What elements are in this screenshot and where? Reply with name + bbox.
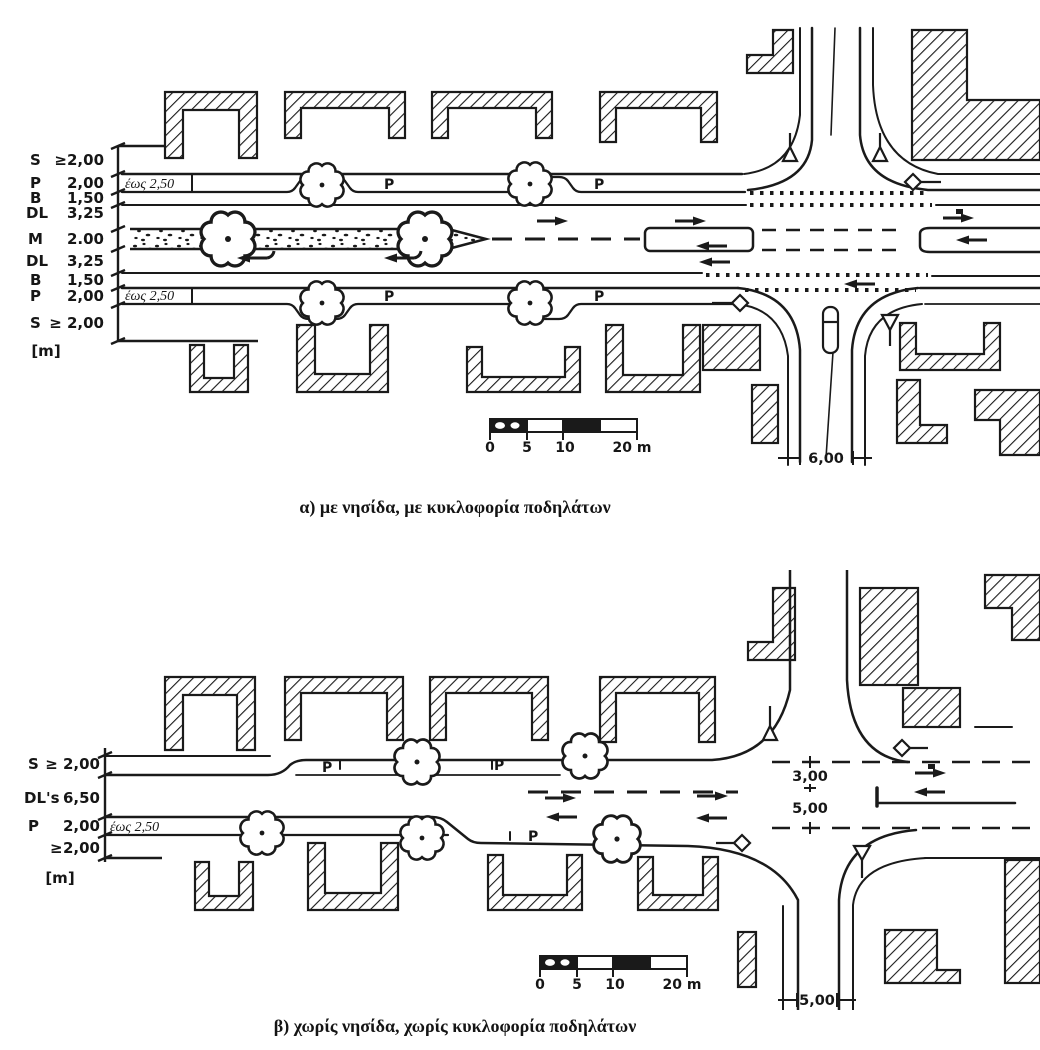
- parking-p-label: P: [384, 177, 394, 193]
- east-dim-bottom-label: 5,00: [792, 801, 828, 817]
- figure-b-plan: S ≥ 2,00 DL's 6,50 P 2,00 ≥ 2,00 [m]: [0, 570, 1040, 1010]
- left-dimension-scale: [98, 748, 162, 862]
- left-dimension-labels: S ≥2,00 P 2,00 B 1,50 DL 3,25 M 2.00 DL …: [26, 151, 104, 360]
- trees: [240, 734, 640, 863]
- dim-value-label: ≥ 2,00: [49, 314, 104, 332]
- median-island: [130, 228, 1040, 252]
- dim-value-label: 3,25: [67, 204, 104, 222]
- dim-value-label: 2,00: [63, 817, 100, 835]
- scale-tick-label: 5: [572, 977, 582, 993]
- parking-p-label: P: [494, 758, 504, 774]
- dim-value-label: 2,00: [67, 287, 104, 305]
- vehicle-icon: [823, 307, 838, 353]
- dim-code-label: M: [28, 230, 43, 248]
- traffic-signs: [716, 706, 928, 878]
- scale-bar: 0 5 10 20 m: [485, 419, 651, 456]
- unit-label: [m]: [45, 869, 74, 887]
- dim-code-label: P: [28, 817, 39, 835]
- parking-max-label: έως 2,50: [125, 177, 174, 192]
- dim-value-label: ≥2,00: [54, 151, 104, 169]
- dim-code-label: S: [30, 314, 41, 332]
- dim-code-label: ≥: [50, 839, 63, 857]
- scale-tick-label: 0: [485, 440, 495, 456]
- parking-p-label: P: [322, 760, 332, 776]
- scale-bar: 0 5 10 20 m: [535, 956, 701, 993]
- cross-width-label: 5,00: [799, 993, 835, 1009]
- scale-tick-label: 20 m: [613, 440, 652, 456]
- east-dimension-chain: [804, 756, 816, 834]
- tree-icon: [395, 740, 440, 785]
- cross-width-label: 6,00: [808, 451, 844, 467]
- dim-value-label: 3,25: [67, 252, 104, 270]
- scale-tick-label: 5: [522, 440, 532, 456]
- dim-value-label: 6,50: [63, 789, 100, 807]
- parking-max-label: έως 2,50: [125, 289, 174, 304]
- parking-p-label: P: [528, 829, 538, 845]
- dim-code-label: DL's: [24, 789, 60, 807]
- scale-tick-label: 0: [535, 977, 545, 993]
- dim-code-label: DL: [26, 252, 48, 270]
- tree-icon: [400, 816, 443, 859]
- east-dim-top-label: 3,00: [792, 769, 828, 785]
- scale-tick-label: 10: [605, 977, 625, 993]
- buildings-north: [165, 30, 1040, 160]
- scale-tick-label: 10: [555, 440, 575, 456]
- yield-sign-icon: [882, 315, 898, 346]
- tree-icon: [508, 162, 551, 205]
- yield-sign-icon: [854, 846, 870, 878]
- parking-p-label: P: [384, 289, 394, 305]
- tree-icon: [594, 816, 641, 863]
- diamond-sign-icon: [712, 295, 748, 311]
- street-design-figure-page: S ≥2,00 P 2,00 B 1,50 DL 3,25 M 2.00 DL …: [0, 0, 1040, 1050]
- warning-triangle-sign-icon: [763, 706, 777, 740]
- diamond-sign-icon: [905, 174, 941, 190]
- left-dimension-labels: S ≥ 2,00 DL's 6,50 P 2,00 ≥ 2,00 [m]: [24, 755, 100, 887]
- parking-p-label: P: [594, 177, 604, 193]
- scale-tick-label: 20 m: [663, 977, 702, 993]
- buildings-north: [165, 575, 1040, 750]
- dim-code-label: P: [30, 287, 41, 305]
- traffic-island: [645, 228, 753, 251]
- dim-value-label: ≥ 2,00: [45, 755, 100, 773]
- dim-value-label: 2.00: [67, 230, 104, 248]
- tree-icon: [300, 163, 343, 206]
- diamond-sign-icon: [894, 740, 928, 756]
- parking-max-label: έως 2,50: [110, 820, 159, 835]
- caption-b: β) χωρίς νησίδα, χωρίς κυκλοφορία ποδηλά…: [0, 1016, 910, 1037]
- buildings-south: [190, 323, 1040, 455]
- caption-a: α) με νησίδα, με κυκλοφορία ποδηλάτων: [0, 497, 910, 518]
- dim-code-label: DL: [26, 204, 48, 222]
- figure-a-plan: S ≥2,00 P 2,00 B 1,50 DL 3,25 M 2.00 DL …: [0, 0, 1040, 470]
- unit-label: [m]: [31, 342, 60, 360]
- dim-value-label: 2,00: [63, 839, 100, 857]
- parking-p-label: P: [594, 289, 604, 305]
- dim-code-label: S: [30, 151, 41, 169]
- dim-code-label: S: [28, 755, 39, 773]
